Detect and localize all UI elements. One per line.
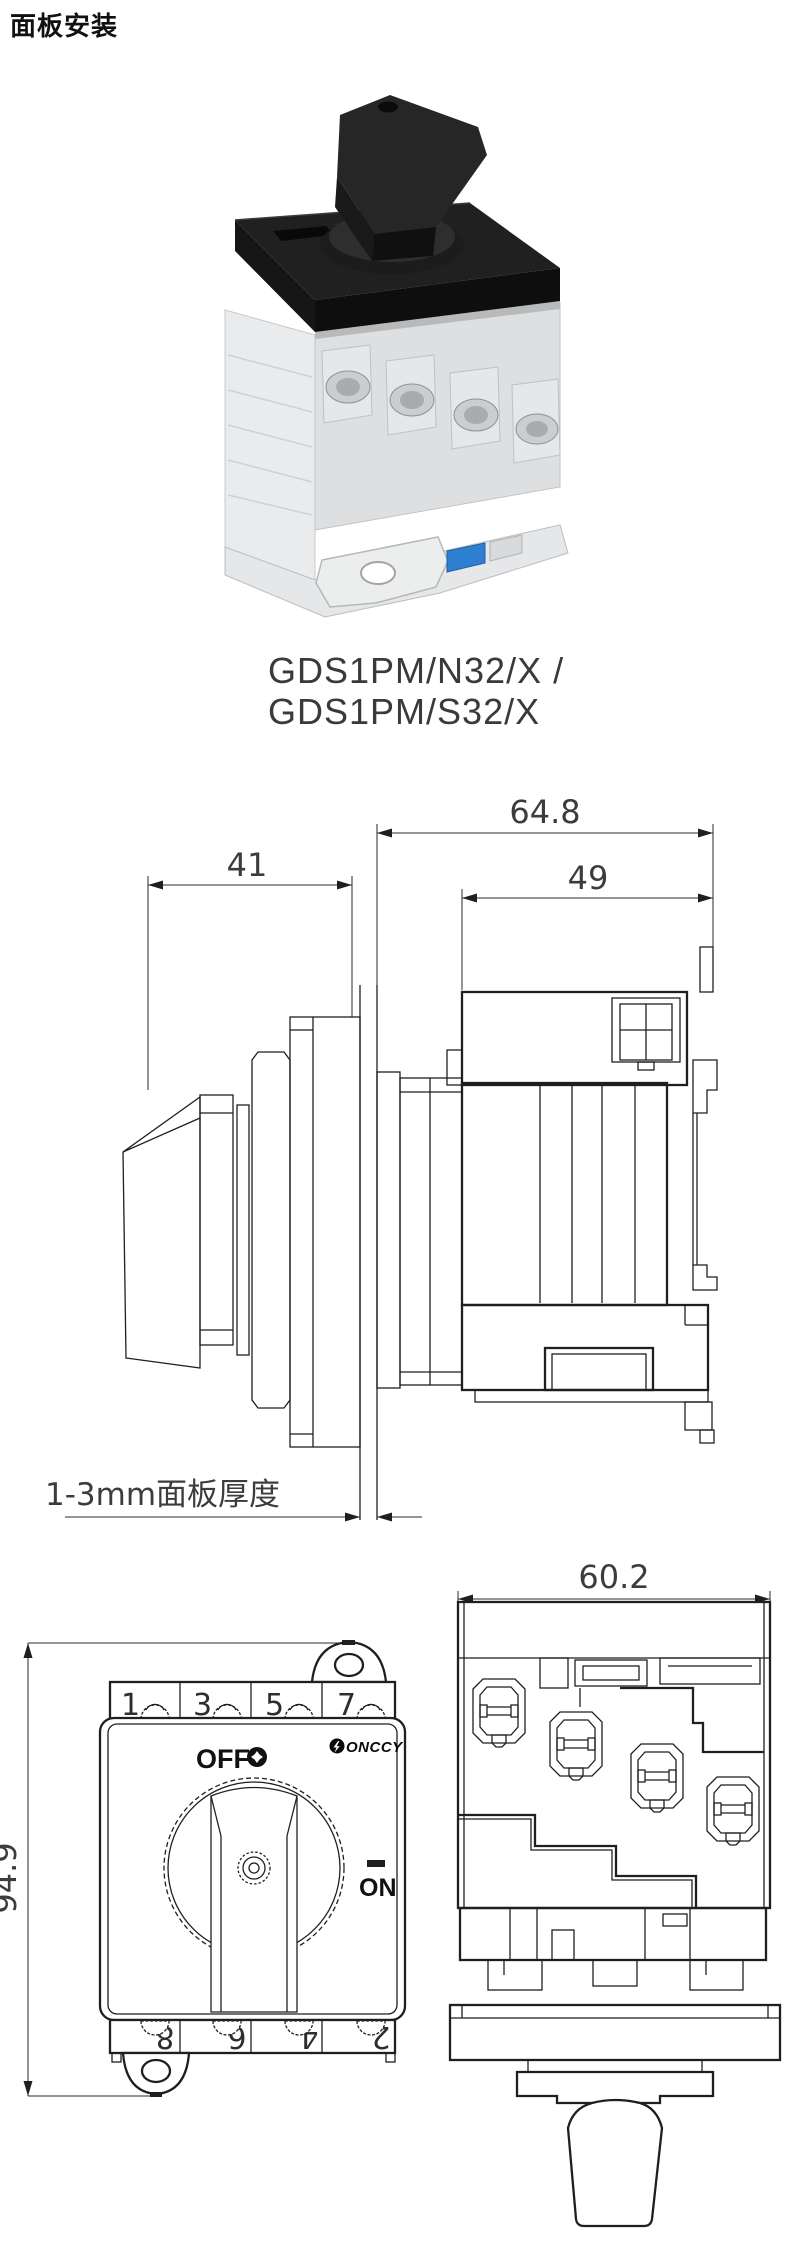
mounting-ear [316, 537, 448, 607]
front-view-drawing: 94.9 1 3 5 7 [0, 1640, 405, 2097]
handle-side-profile [123, 1017, 360, 1447]
dim-49-label: 49 [568, 859, 609, 897]
top-mounting-ear [312, 1640, 386, 1682]
dim-49: 49 [462, 859, 713, 990]
bottom-drawings: 94.9 1 3 5 7 [0, 1560, 790, 2250]
front-body: OFF ONCCY [100, 1718, 405, 2020]
dim-64-8-label: 64.8 [509, 793, 580, 831]
switch-body-side [377, 947, 717, 1443]
onccy-logo-text: ONCCY [346, 1739, 404, 1756]
top-view-drawing: 60.2 [450, 1560, 780, 2226]
top-view-plate [450, 2005, 780, 2060]
panel-thickness-dim: 1-3mm面板厚度 [45, 1477, 422, 1522]
dim-41-label: 41 [227, 846, 268, 884]
product-photo [140, 55, 570, 655]
switch-body-gray [225, 300, 568, 617]
top-view-base [460, 1908, 766, 1990]
panel-lines [360, 985, 377, 1520]
model-line-1: GDS1PM/N32/X / [268, 650, 564, 691]
padlock-icon [247, 1747, 267, 1767]
bottom-mounting-ear [123, 2053, 189, 2097]
dim-64-8: 64.8 [377, 793, 713, 985]
on-label: ON [359, 1874, 397, 1902]
dim-60-2-label: 60.2 [578, 1560, 649, 1596]
on-mark [367, 1860, 385, 1867]
top-view-handle [517, 2060, 713, 2226]
dim-41: 41 [148, 846, 352, 1090]
off-label: OFF [196, 1744, 250, 1774]
dim-94-9-label: 94.9 [0, 1842, 24, 1913]
rotary-handle-black [320, 95, 487, 274]
product-model: GDS1PM/N32/X / GDS1PM/S32/X [268, 650, 564, 732]
side-view-drawing: 64.8 41 49 [0, 780, 790, 1560]
top-body-outline [458, 1602, 770, 1908]
model-line-2: GDS1PM/S32/X [268, 691, 564, 732]
datasheet-page: 面板安装 [0, 0, 790, 2250]
panel-thickness-label: 1-3mm面板厚度 [45, 1477, 280, 1513]
page-title: 面板安装 [10, 6, 118, 43]
